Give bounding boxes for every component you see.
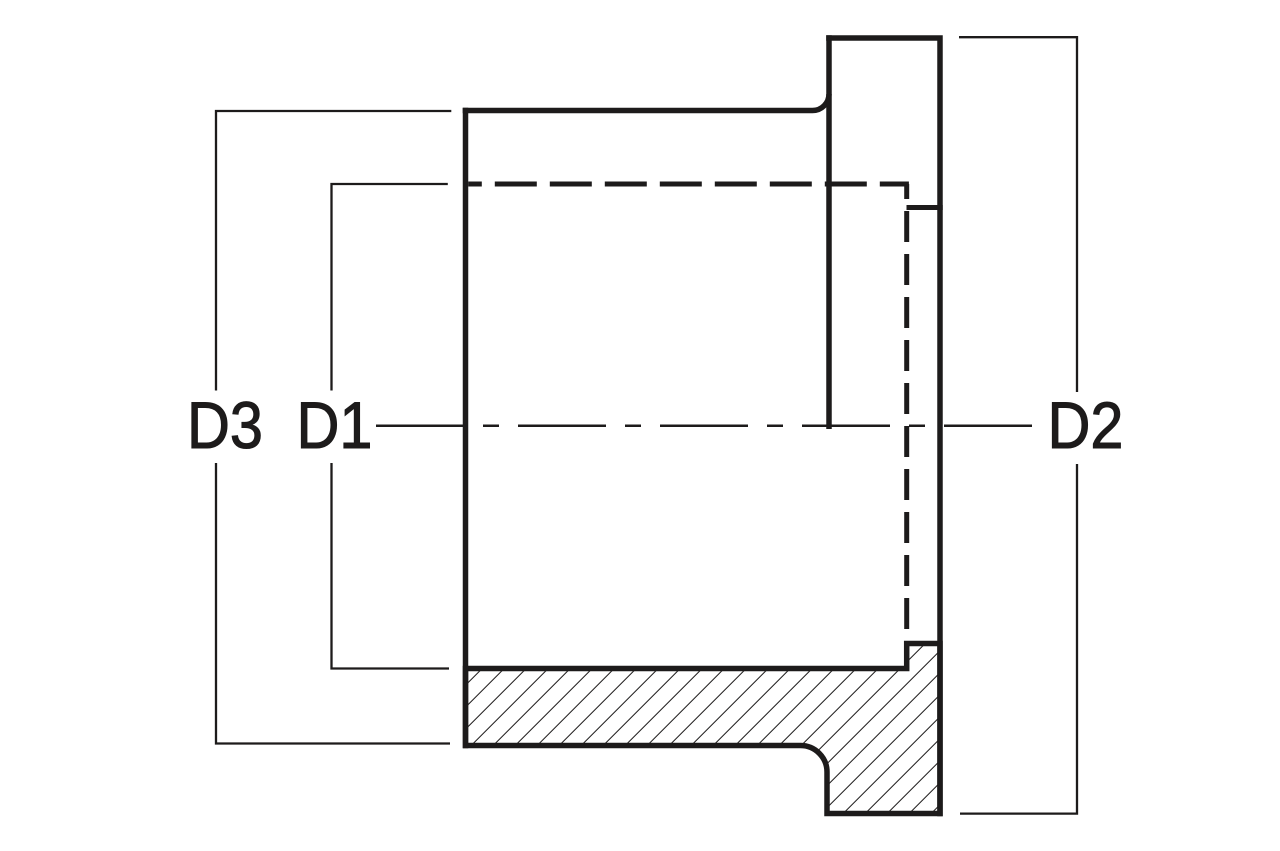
svg-text:D3: D3 — [187, 389, 263, 463]
svg-text:D1: D1 — [297, 389, 373, 463]
svg-text:D2: D2 — [1048, 389, 1124, 463]
